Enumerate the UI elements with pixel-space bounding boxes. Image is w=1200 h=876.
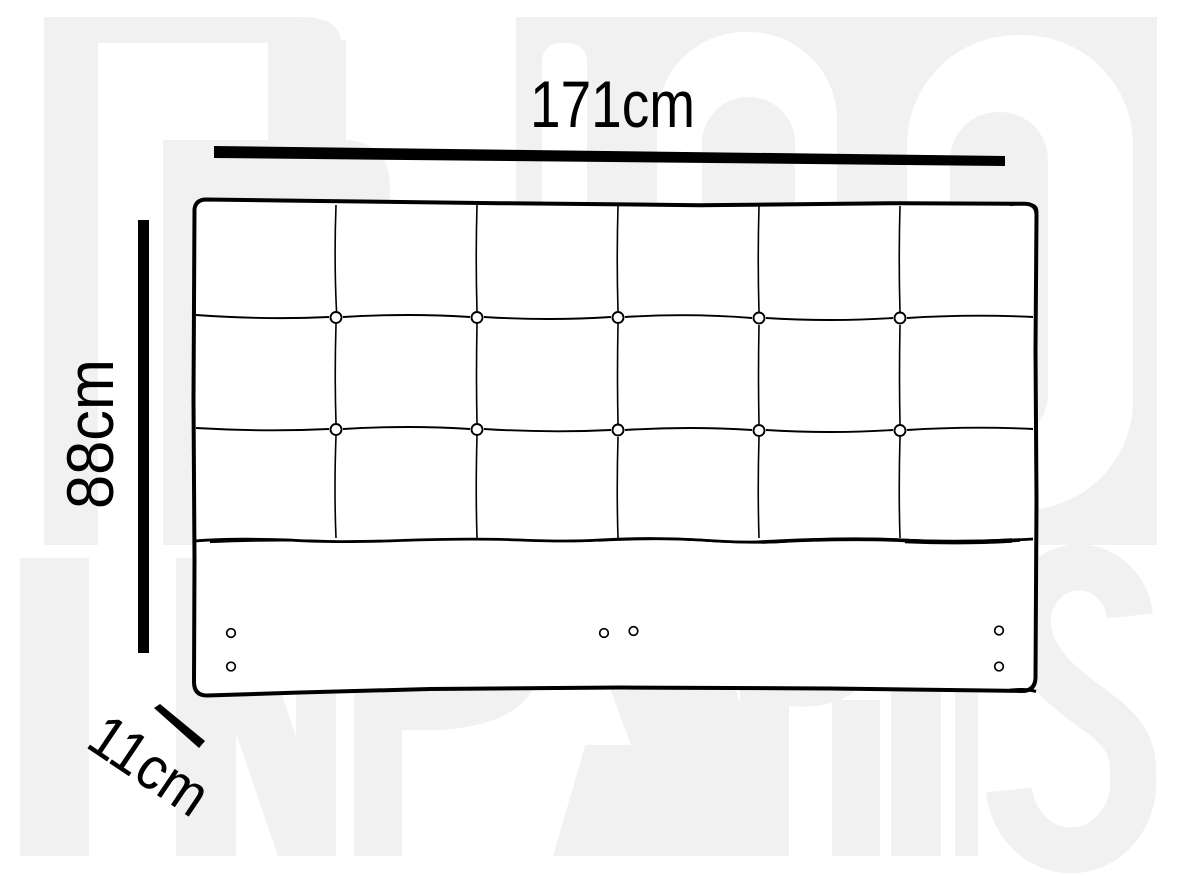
svg-text:88cm: 88cm xyxy=(53,359,127,509)
svg-text:171cm: 171cm xyxy=(530,67,695,141)
